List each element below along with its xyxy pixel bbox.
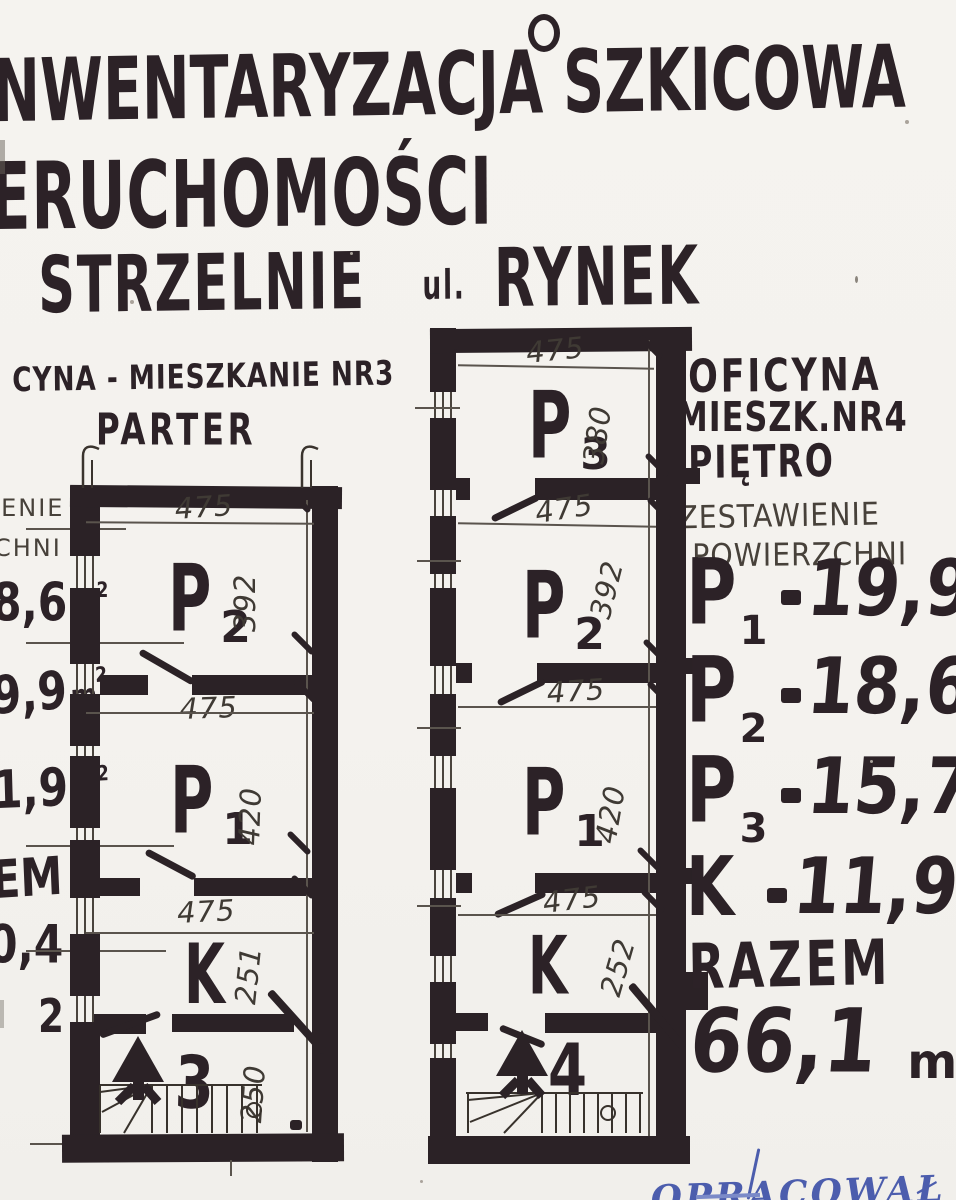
equals-dash <box>781 788 801 803</box>
dim-label: 380 <box>576 403 618 466</box>
wall-segment <box>450 1013 488 1031</box>
dimension-line <box>230 1160 232 1176</box>
title-street-name: RYNEK <box>494 229 701 326</box>
dimension-line <box>458 364 654 369</box>
summary-heading-1: ZESTAWIENIE <box>678 496 880 537</box>
scan-speck <box>905 120 909 124</box>
scanned-inventory-sketch: NWENTARYZACJA SZKICOWA ERUCHOMOŚCI STRZE… <box>0 0 956 1200</box>
plan-a-floor-label: PARTER <box>96 406 256 455</box>
left-margin-fragment-heading1: IENIE <box>0 494 64 522</box>
wall-segment <box>70 588 100 664</box>
wall-segment <box>100 675 148 695</box>
wall-segment <box>430 418 456 490</box>
extension-line-squiggle <box>78 442 104 488</box>
wall-segment <box>70 756 100 828</box>
signature-opracowal: OPRACOWAŁ <box>650 1168 946 1200</box>
scan-speck <box>420 1180 423 1183</box>
title-line-1: NWENTARYZACJA SZKICOWA <box>0 25 906 142</box>
left-margin-razem-fragment: EM <box>0 845 64 910</box>
wall-segment <box>430 516 456 574</box>
title-ring-decoration <box>528 14 560 52</box>
plan-b-floor-label: PIĘTRO <box>688 436 835 489</box>
dimension-line <box>458 706 656 708</box>
wall-nub <box>684 468 700 484</box>
dimension-line <box>415 407 460 409</box>
left-margin-sup-fragment: 2 <box>38 990 64 1044</box>
area-row-p3: P3 15,7 m2 <box>686 750 956 852</box>
dim-label: 392 <box>228 574 262 632</box>
staircase <box>458 1040 663 1136</box>
left-margin-total-fragment: 0,4 <box>0 914 63 975</box>
wall-segment <box>456 873 472 893</box>
wall-segment <box>456 478 470 500</box>
extension-line-squiggle <box>294 442 320 488</box>
wall-segment <box>456 663 472 683</box>
dim-label: 251 <box>228 944 268 1006</box>
scan-speck <box>870 760 873 763</box>
dimension-line <box>417 905 461 907</box>
dim-label: 475 <box>179 690 239 726</box>
room-label-p1: P1 <box>522 762 605 857</box>
dimension-line <box>86 712 314 714</box>
plan-a-heading: CYNA - MIESZKANIE NR3 <box>12 353 395 399</box>
equals-dash <box>781 688 801 703</box>
wall-segment <box>430 588 456 666</box>
room-label-k: K <box>184 938 235 997</box>
dim-label: 420 <box>232 786 268 846</box>
plan-a-bottom-wall <box>62 1133 344 1162</box>
wall-segment <box>430 788 456 870</box>
north-arrow <box>110 1036 166 1102</box>
equals-dash <box>767 888 787 903</box>
door-leaf <box>496 678 546 707</box>
scan-edge-smudge <box>0 140 5 174</box>
scan-edge-smudge <box>0 1000 4 1028</box>
plan-a-right-wall <box>312 486 338 1162</box>
dimension-line <box>26 845 174 847</box>
wall-segment <box>96 878 140 896</box>
dimension-line <box>417 727 461 729</box>
scan-speck <box>130 300 134 304</box>
title-street-city: STRZELNIE <box>38 235 366 331</box>
dim-label: 475 <box>546 672 607 710</box>
area-row-k: K 11,9 m2 <box>686 850 956 924</box>
wall-segment <box>430 694 456 756</box>
dimension-line <box>26 642 184 644</box>
plan-b-bottom-wall <box>428 1136 690 1164</box>
unit-m2: m2 <box>907 1034 956 1090</box>
north-arrow <box>494 1030 550 1096</box>
wall-segment <box>70 694 100 746</box>
dim-label: 475 <box>524 330 586 370</box>
total-value-row: 66,1 m2 <box>694 1000 956 1090</box>
dim-label: 475 <box>174 488 235 526</box>
wall-segment <box>430 1058 456 1138</box>
dimension-line <box>417 560 461 562</box>
plan-b-heading-2: MIESZK.NR4 <box>676 394 908 442</box>
title-line-3: STRZELNIE ul. RYNEK <box>38 229 700 332</box>
scan-speck <box>350 252 353 255</box>
dim-label: 475 <box>176 893 236 930</box>
room-label-k: K <box>528 932 578 990</box>
scan-speck <box>855 276 858 283</box>
equals-dash <box>781 590 801 605</box>
title-ul-abbrev: ul. <box>422 262 465 310</box>
dimension-line <box>86 932 314 934</box>
left-margin-fragment-heading2: CHNI <box>0 534 62 562</box>
wall-segment <box>70 934 100 996</box>
dimension-line <box>458 914 656 916</box>
